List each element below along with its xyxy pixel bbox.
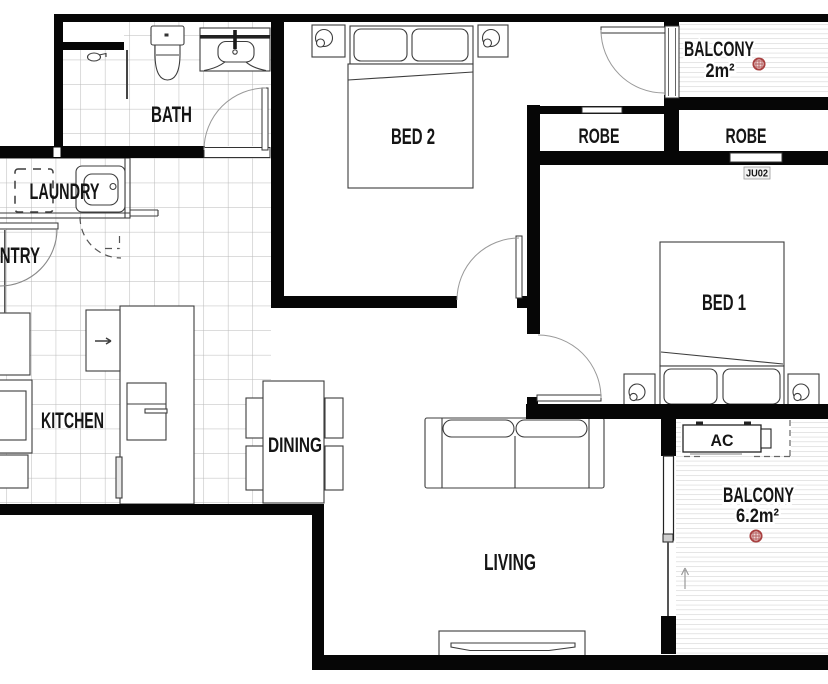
svg-text:LIVING: LIVING bbox=[484, 549, 536, 575]
svg-text:BATH: BATH bbox=[151, 102, 192, 127]
svg-text:DINING: DINING bbox=[268, 434, 322, 457]
svg-text:BED 2: BED 2 bbox=[391, 124, 435, 149]
svg-text:LAUNDRY: LAUNDRY bbox=[30, 179, 100, 204]
svg-text:2m²: 2m² bbox=[706, 61, 735, 82]
svg-text:ROBE: ROBE bbox=[726, 125, 767, 148]
svg-text:ROBE: ROBE bbox=[579, 125, 620, 148]
svg-text:JU02: JU02 bbox=[746, 169, 768, 180]
svg-text:6.2m²: 6.2m² bbox=[736, 506, 779, 527]
svg-text:BED 1: BED 1 bbox=[702, 290, 746, 315]
svg-text:KITCHEN: KITCHEN bbox=[41, 408, 104, 433]
svg-text:BALCONY: BALCONY bbox=[684, 38, 754, 61]
svg-text:PANTRY: PANTRY bbox=[0, 243, 40, 268]
svg-text:AC: AC bbox=[711, 431, 734, 450]
svg-text:BALCONY: BALCONY bbox=[723, 484, 794, 507]
